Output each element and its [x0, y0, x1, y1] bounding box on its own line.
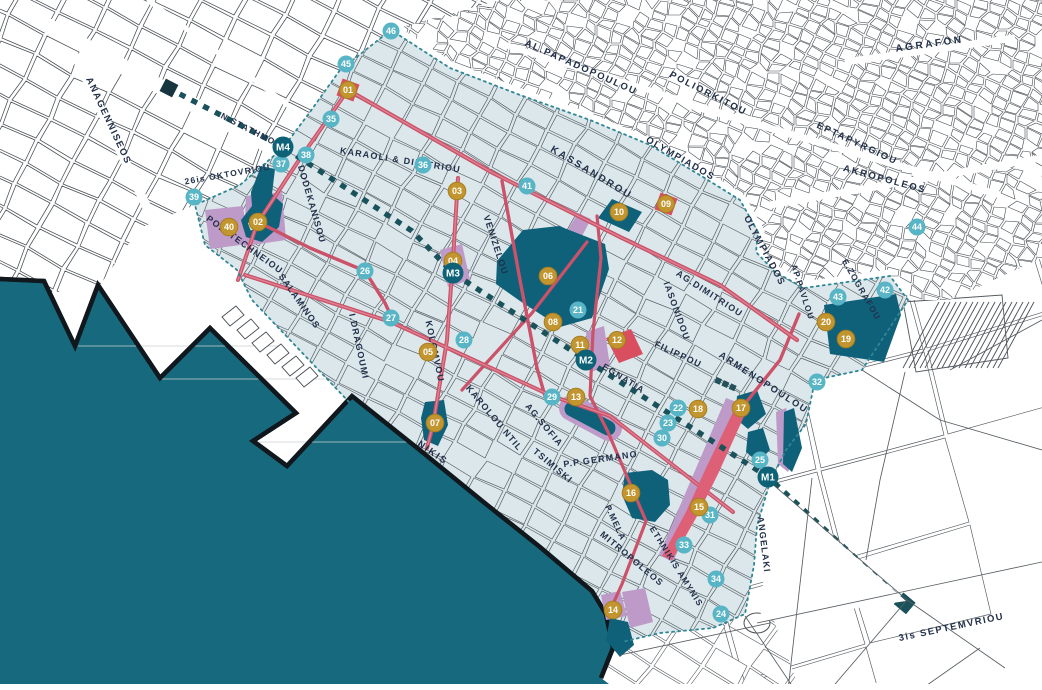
- svg-text:37: 37: [276, 159, 286, 169]
- svg-text:07: 07: [430, 418, 440, 428]
- svg-text:M4: M4: [276, 143, 290, 154]
- svg-text:19: 19: [841, 334, 851, 344]
- svg-text:43: 43: [833, 292, 843, 302]
- svg-text:09: 09: [661, 199, 671, 209]
- svg-text:22: 22: [673, 403, 683, 413]
- svg-text:39: 39: [189, 192, 199, 202]
- svg-text:17: 17: [736, 403, 746, 413]
- svg-text:18: 18: [693, 404, 703, 414]
- svg-text:15: 15: [694, 502, 704, 512]
- svg-text:46: 46: [386, 26, 396, 36]
- svg-text:28: 28: [459, 335, 469, 345]
- svg-text:02: 02: [253, 217, 263, 227]
- svg-text:27: 27: [386, 313, 396, 323]
- svg-text:36: 36: [418, 160, 428, 170]
- svg-text:08: 08: [548, 317, 558, 327]
- svg-text:M1: M1: [761, 473, 775, 484]
- svg-text:14: 14: [608, 605, 618, 615]
- svg-text:35: 35: [326, 114, 336, 124]
- svg-text:41: 41: [522, 181, 532, 191]
- svg-text:06: 06: [543, 271, 553, 281]
- svg-text:45: 45: [341, 59, 351, 69]
- svg-text:03: 03: [452, 186, 462, 196]
- svg-text:34: 34: [711, 574, 721, 584]
- svg-text:29: 29: [547, 392, 557, 402]
- svg-text:11: 11: [575, 340, 585, 350]
- svg-text:42: 42: [880, 285, 890, 295]
- svg-text:M2: M2: [579, 356, 593, 367]
- svg-text:32: 32: [812, 377, 822, 387]
- svg-text:01: 01: [343, 85, 353, 95]
- svg-text:05: 05: [423, 347, 433, 357]
- svg-text:38: 38: [301, 150, 311, 160]
- svg-text:20: 20: [821, 317, 831, 327]
- svg-text:M3: M3: [446, 269, 460, 280]
- svg-text:40: 40: [224, 222, 234, 232]
- svg-text:10: 10: [614, 207, 624, 217]
- svg-text:12: 12: [612, 335, 622, 345]
- svg-text:23: 23: [663, 418, 673, 428]
- svg-text:33: 33: [679, 540, 689, 550]
- svg-text:16: 16: [626, 488, 636, 498]
- svg-text:13: 13: [571, 392, 581, 402]
- svg-text:24: 24: [716, 609, 726, 619]
- svg-text:25: 25: [755, 455, 765, 465]
- svg-text:26: 26: [360, 266, 370, 276]
- svg-text:44: 44: [912, 222, 922, 232]
- svg-text:21: 21: [573, 305, 583, 315]
- svg-text:30: 30: [657, 433, 667, 443]
